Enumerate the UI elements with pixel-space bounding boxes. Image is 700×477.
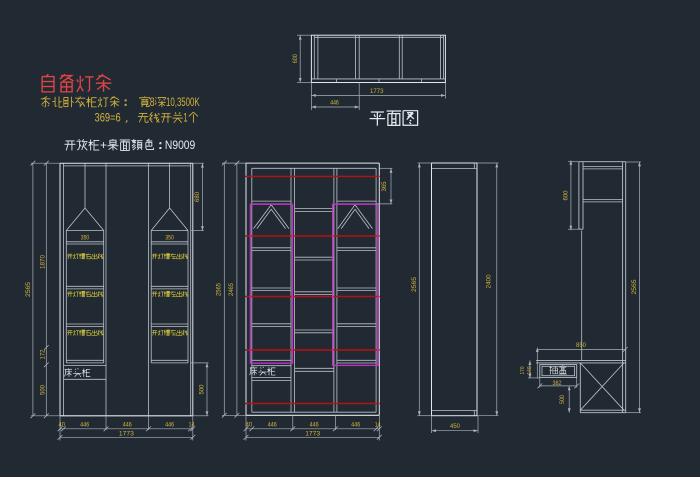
svg-text:170: 170 xyxy=(520,367,526,375)
svg-text:446: 446 xyxy=(310,421,319,428)
svg-text:172: 172 xyxy=(39,349,46,359)
svg-text:600: 600 xyxy=(562,190,569,200)
svg-text:1773: 1773 xyxy=(370,88,384,95)
svg-text:600: 600 xyxy=(292,54,299,63)
svg-text:2565: 2565 xyxy=(216,283,223,296)
svg-text:680: 680 xyxy=(194,192,201,202)
svg-text:446: 446 xyxy=(165,421,174,428)
svg-text:2400: 2400 xyxy=(485,274,492,288)
svg-text:40: 40 xyxy=(246,421,253,428)
svg-text:1773: 1773 xyxy=(305,431,320,438)
svg-text:2565: 2565 xyxy=(631,279,638,294)
svg-text:382: 382 xyxy=(553,380,562,387)
svg-text:14: 14 xyxy=(375,421,381,428)
svg-text:1: 1 xyxy=(183,113,187,125)
svg-text:N9009: N9009 xyxy=(165,138,196,152)
svg-text:500: 500 xyxy=(39,385,46,395)
svg-text:446: 446 xyxy=(80,421,89,428)
svg-text:850: 850 xyxy=(576,342,586,349)
svg-text:40: 40 xyxy=(59,421,66,428)
svg-text:1773: 1773 xyxy=(119,431,134,438)
svg-text:14: 14 xyxy=(189,421,195,428)
svg-text:2465: 2465 xyxy=(228,283,235,296)
svg-text:369=6: 369=6 xyxy=(95,113,121,125)
svg-text:1870: 1870 xyxy=(39,255,46,269)
svg-text:365: 365 xyxy=(381,181,388,191)
svg-text:446: 446 xyxy=(330,99,339,106)
svg-text:140: 140 xyxy=(527,367,533,375)
svg-text:10,3500K: 10,3500K xyxy=(166,97,200,109)
svg-text:500: 500 xyxy=(199,384,206,394)
svg-text:446: 446 xyxy=(123,421,132,428)
svg-text:446: 446 xyxy=(268,421,277,428)
svg-text:500: 500 xyxy=(559,395,566,404)
svg-text:+: + xyxy=(100,138,107,152)
svg-text:446: 446 xyxy=(351,421,360,428)
svg-text:350: 350 xyxy=(81,236,90,242)
svg-text:450: 450 xyxy=(450,423,460,430)
svg-text:8: 8 xyxy=(150,97,155,109)
svg-text:2565: 2565 xyxy=(411,277,418,292)
svg-text:350: 350 xyxy=(165,236,174,242)
svg-text:2565: 2565 xyxy=(25,282,32,297)
